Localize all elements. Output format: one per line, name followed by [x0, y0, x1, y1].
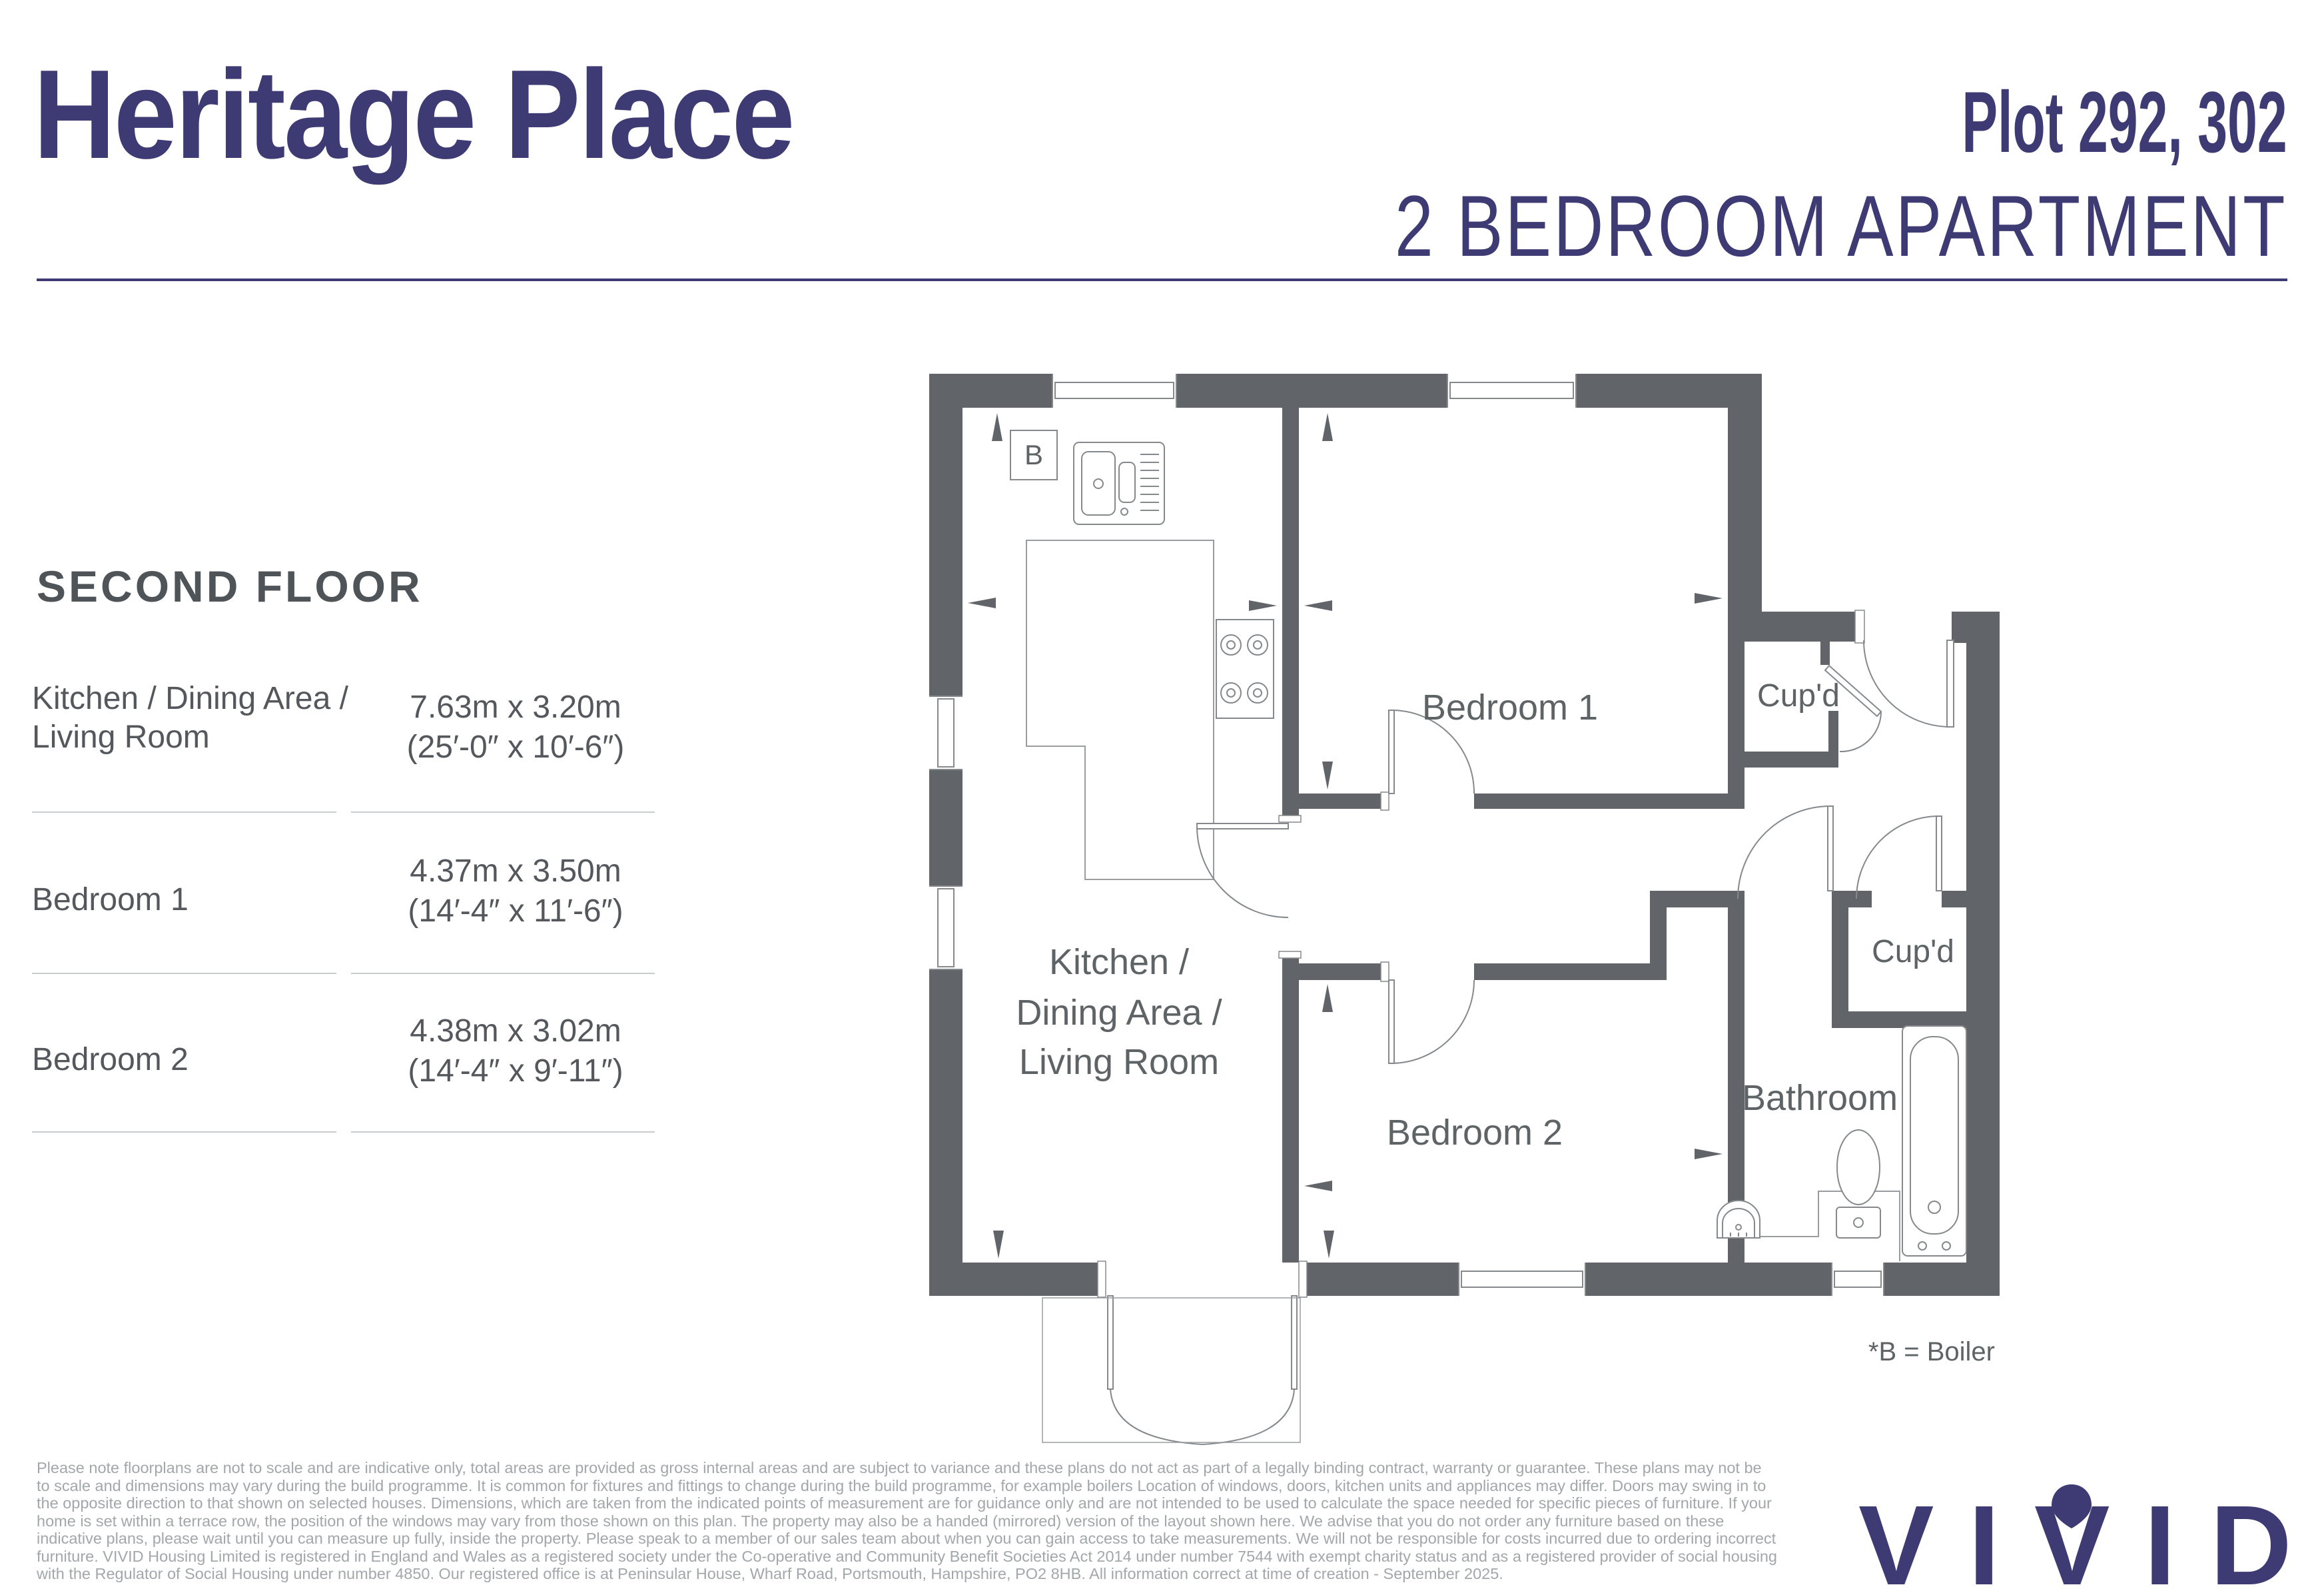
window-living-left-lower [929, 886, 963, 969]
room-dims-bedroom2: 4.38m x 3.02m (14′-4″ x 9′-11″) [370, 1011, 661, 1091]
window-bedroom2-bottom [1459, 1263, 1585, 1296]
logo-letter: I [1968, 1482, 2000, 1588]
door-arc-bathroom [1738, 806, 1830, 899]
imperial-dim: (14′-4″ x 9′-11″) [370, 1051, 661, 1091]
metric-dim: 7.63m x 3.20m [370, 688, 661, 728]
door-leaf-bedroom2 [1389, 980, 1394, 1063]
room-name-kitchen: Kitchen / Dining Area / Living Room [32, 680, 392, 757]
plot-number: Plot 292, 302 [1962, 72, 2287, 172]
label-kitchen-1: Kitchen / [1049, 942, 1189, 982]
row-separator [351, 973, 655, 974]
room-name-bedroom2: Bedroom 2 [32, 1041, 392, 1079]
door-leaf-entrance [1947, 640, 1954, 727]
window-bedroom1-top [1447, 374, 1576, 408]
apartment-type: 2 BEDROOM APARTMENT [1395, 176, 2287, 276]
window-bathroom-bottom [1832, 1263, 1884, 1296]
basin [1717, 1201, 1760, 1238]
disclaimer-text: Please note floorplans are not to scale … [37, 1459, 1778, 1583]
window-kitchen-top [1052, 374, 1176, 408]
kitchen-counter [1026, 540, 1214, 879]
metric-dim: 4.38m x 3.02m [370, 1011, 661, 1051]
logo-letter: V [1858, 1482, 1934, 1588]
room-dims-bedroom1: 4.37m x 3.50m (14′-4″ x 11′-6″) [370, 851, 661, 931]
bathroom-fixtures [1717, 1026, 1966, 1261]
kitchen-fixtures [1010, 430, 1274, 879]
label-bedroom1: Bedroom 1 [1422, 688, 1598, 728]
logo-letter: D [2210, 1482, 2292, 1588]
door-arc-cupboard1 [1840, 712, 1881, 752]
row-separator [351, 811, 655, 813]
room-dims-kitchen: 7.63m x 3.20m (25′-0″ x 10′-6″) [370, 688, 661, 768]
french-door-arc-right [1202, 1389, 1294, 1444]
door-arc-bedroom2 [1391, 980, 1474, 1063]
label-kitchen-3: Living Room [1019, 1042, 1219, 1082]
label-boiler: B [1024, 439, 1043, 470]
floor-plan: Bedroom 1 Bedroom 2 Bathroom Cup'd Cup'd… [899, 320, 2085, 1466]
door-arc-living [1197, 826, 1288, 917]
door-leaf-bedroom1 [1389, 710, 1394, 794]
imperial-dim: (14′-4″ x 11′-6″) [370, 891, 661, 931]
row-separator [32, 973, 336, 974]
room-name-bedroom1: Bedroom 1 [32, 881, 392, 919]
metric-dim: 4.37m x 3.50m [370, 851, 661, 891]
balcony-outline [1042, 1298, 1300, 1442]
door-leaf-cupboard2 [1936, 816, 1942, 891]
kitchen-sink [1074, 442, 1164, 524]
row-separator [32, 811, 336, 813]
toilet [1836, 1130, 1880, 1238]
french-door-leaf-right [1292, 1296, 1297, 1389]
label-bathroom: Bathroom [1742, 1078, 1898, 1118]
boiler-legend-note: *B = Boiler [1868, 1337, 1995, 1366]
french-door-arc-left [1110, 1389, 1202, 1444]
kitchen-hob [1216, 620, 1274, 718]
page-title: Heritage Place [33, 42, 793, 187]
header-divider [37, 278, 2287, 281]
vivid-logo: V I V I D [1858, 1478, 2298, 1588]
row-separator [32, 1131, 336, 1133]
label-cupboard1: Cup'd [1757, 678, 1840, 714]
label-cupboard2: Cup'd [1872, 934, 1954, 969]
door-leaf-living [1197, 823, 1288, 829]
bathtub [1902, 1026, 1966, 1256]
logo-letter: I [2144, 1482, 2175, 1588]
floor-label: SECOND FLOOR [37, 561, 423, 612]
label-kitchen-2: Dining Area / [1016, 993, 1222, 1033]
row-separator [351, 1131, 655, 1133]
french-door-leaf-left [1108, 1296, 1113, 1389]
window-living-left-upper [929, 696, 963, 770]
imperial-dim: (25′-0″ x 10′-6″) [370, 728, 661, 768]
label-bedroom2: Bedroom 2 [1387, 1113, 1563, 1153]
door-arc-cupboard2 [1856, 816, 1939, 899]
door-leaf-bathroom [1828, 806, 1833, 891]
